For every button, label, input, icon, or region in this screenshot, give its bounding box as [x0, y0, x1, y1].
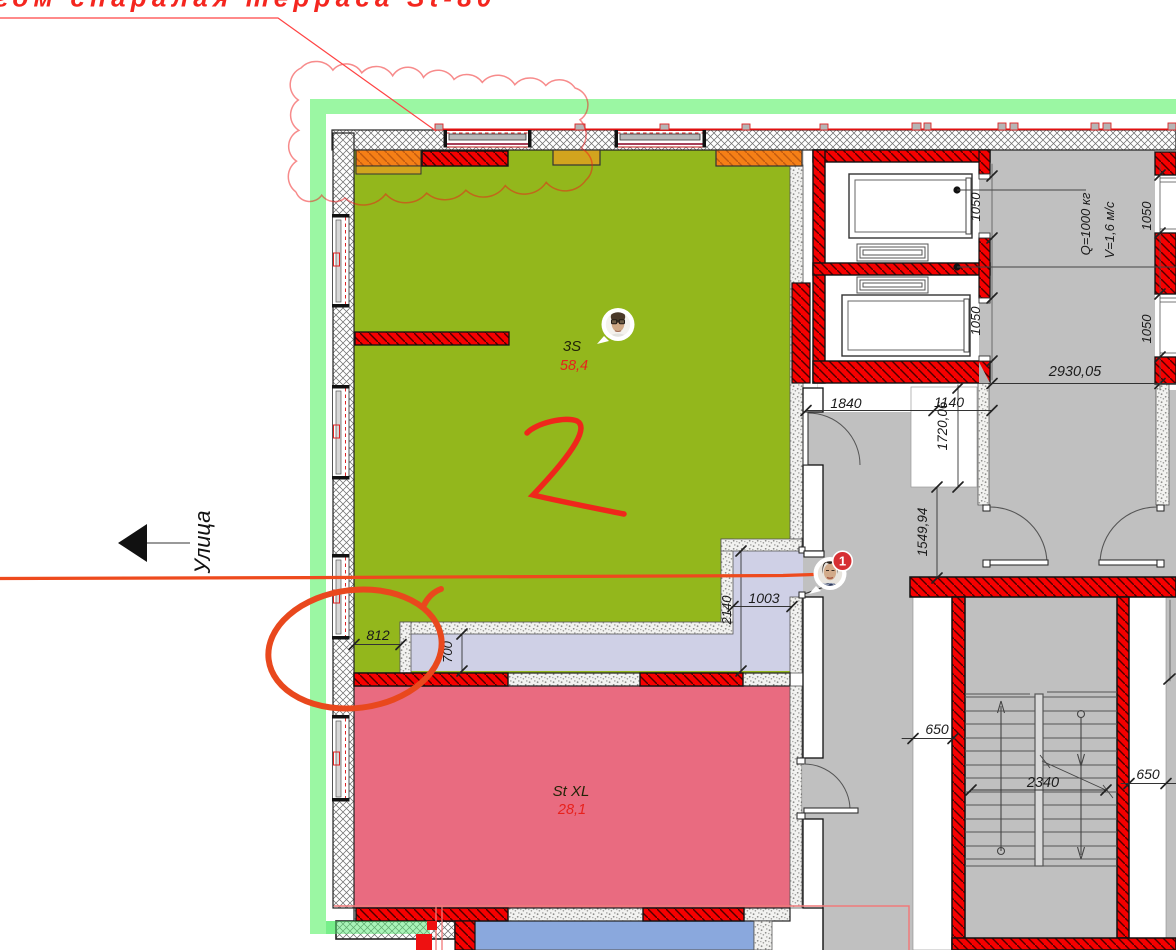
svg-text:1050: 1050 — [968, 306, 983, 336]
svg-text:58,4: 58,4 — [560, 358, 588, 374]
svg-text:V=1,6 м/с: V=1,6 м/с — [1102, 201, 1117, 258]
svg-text:650: 650 — [925, 721, 949, 737]
svg-text:St XL: St XL — [553, 783, 590, 800]
svg-text:Улица: Улица — [190, 510, 215, 574]
svg-text:1: 1 — [839, 554, 846, 569]
svg-text:гом спаралая терраса St-80: гом спаралая терраса St-80 — [0, 0, 497, 13]
svg-text:28,1: 28,1 — [557, 802, 586, 818]
svg-text:1050: 1050 — [1139, 314, 1154, 344]
svg-text:650: 650 — [1136, 766, 1160, 782]
svg-text:1050: 1050 — [1139, 201, 1154, 231]
svg-text:1050: 1050 — [968, 192, 983, 222]
svg-text:3S: 3S — [563, 338, 581, 355]
svg-text:1840: 1840 — [830, 395, 861, 411]
svg-text:1549,94: 1549,94 — [915, 508, 930, 557]
svg-text:2340: 2340 — [1026, 775, 1059, 791]
svg-text:1720,06: 1720,06 — [935, 401, 950, 450]
svg-text:Q=1000 кг: Q=1000 кг — [1078, 192, 1093, 255]
svg-text:812: 812 — [366, 627, 390, 643]
svg-text:1003: 1003 — [748, 590, 779, 606]
svg-text:2140: 2140 — [719, 595, 734, 626]
svg-text:2930,05: 2930,05 — [1048, 364, 1102, 380]
